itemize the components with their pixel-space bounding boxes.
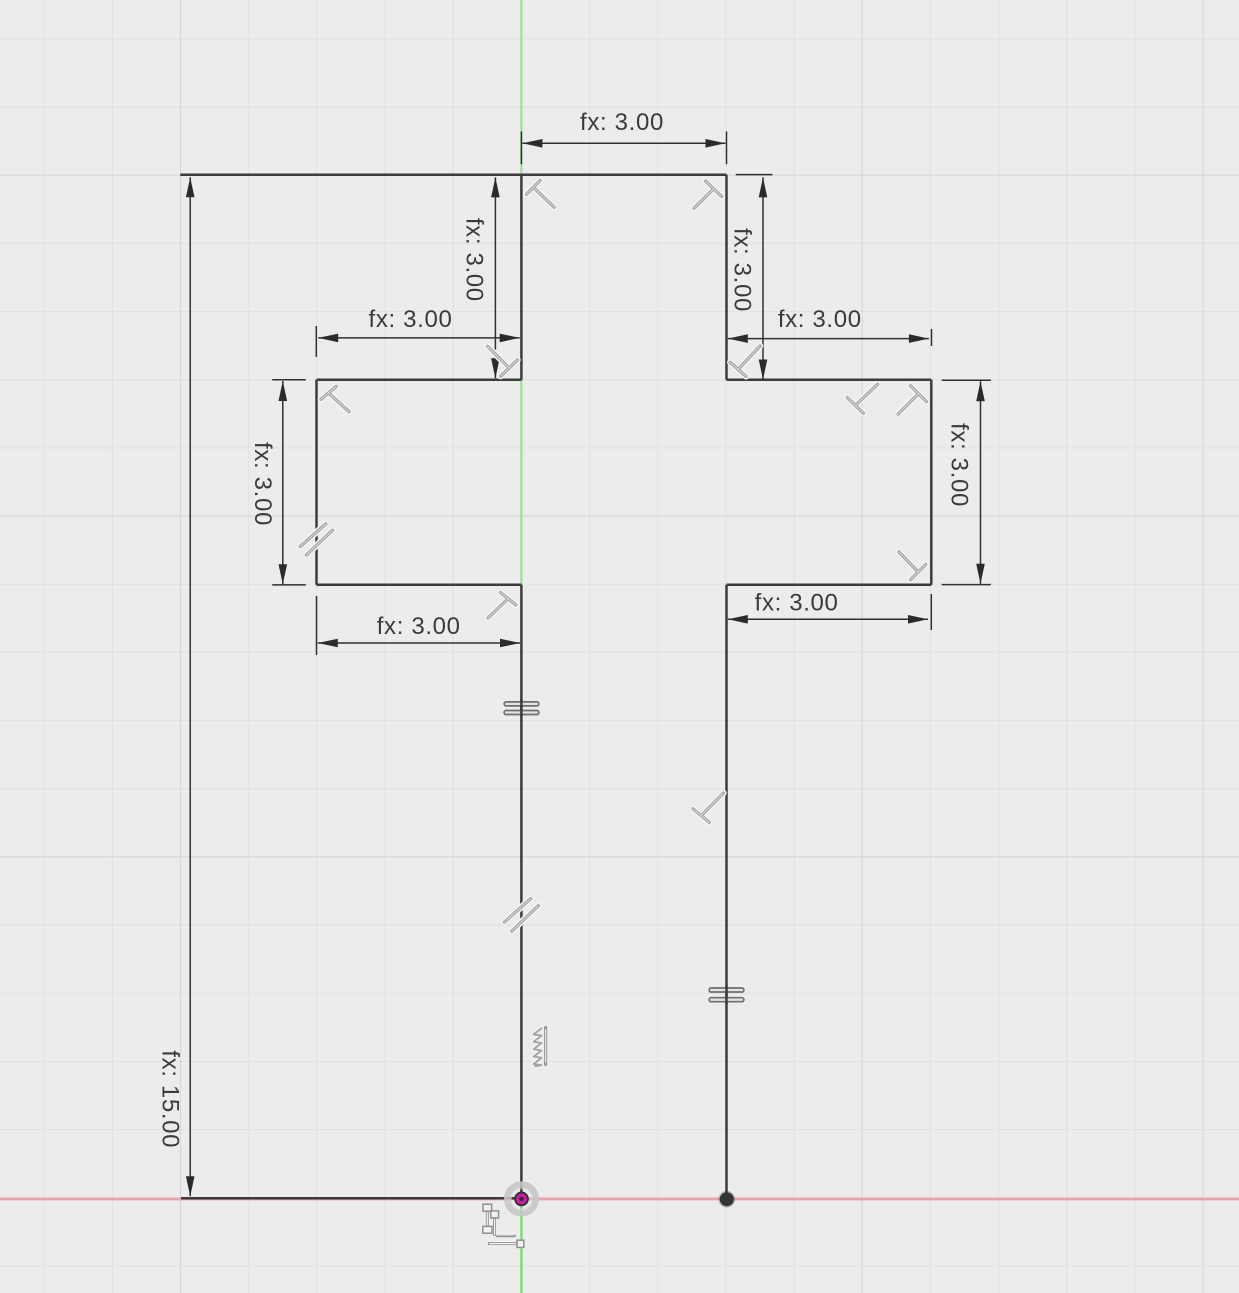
svg-text:fx: 3.00: fx: 3.00 [249, 442, 276, 526]
svg-text:fx: 15.00: fx: 15.00 [156, 1050, 183, 1148]
svg-text:fx: 3.00: fx: 3.00 [778, 306, 862, 333]
svg-text:fx: 3.00: fx: 3.00 [755, 589, 839, 616]
svg-text:fx: 3.00: fx: 3.00 [369, 306, 453, 333]
svg-text:fx: 3.00: fx: 3.00 [946, 423, 973, 507]
svg-text:fx: 3.00: fx: 3.00 [728, 228, 755, 312]
svg-text:fx: 3.00: fx: 3.00 [580, 109, 664, 136]
svg-text:fx: 3.00: fx: 3.00 [461, 218, 488, 302]
svg-text:fx: 3.00: fx: 3.00 [377, 613, 461, 640]
